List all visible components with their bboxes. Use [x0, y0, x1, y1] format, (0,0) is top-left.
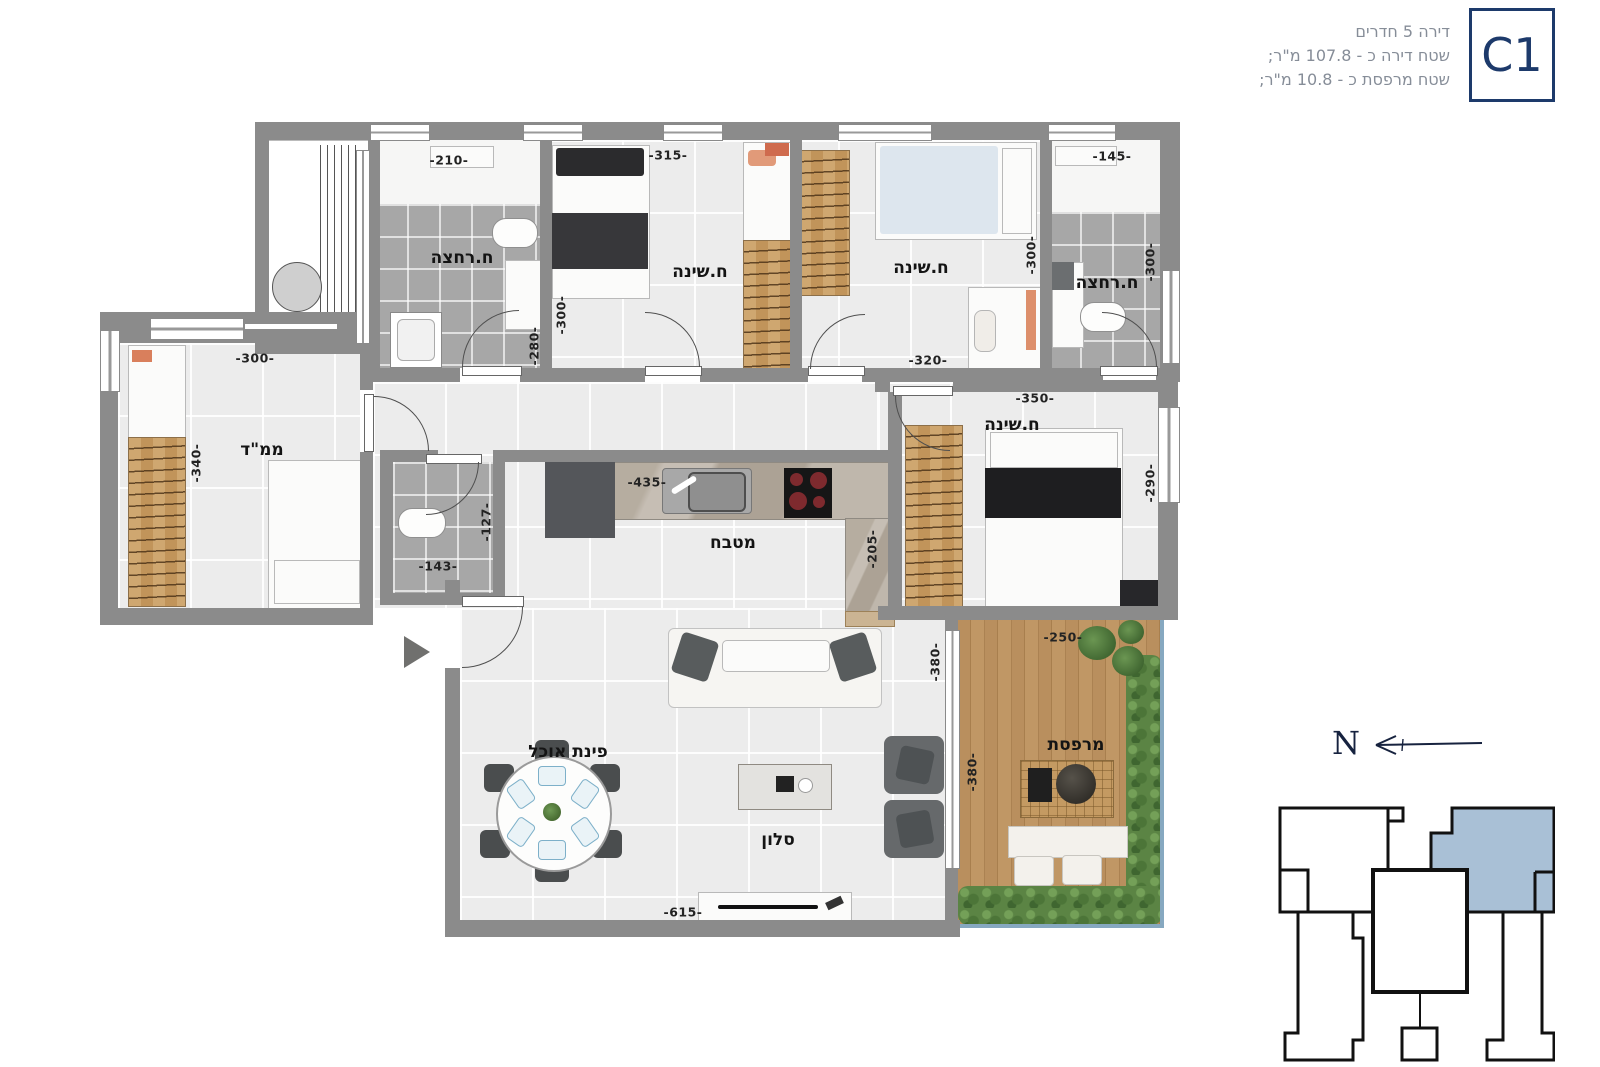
wall [945, 867, 958, 920]
door-leaf [364, 394, 374, 452]
wall [953, 380, 1160, 392]
dim-bath1-width: -210- [430, 153, 469, 168]
dim-kitchen-width: -435- [628, 475, 667, 490]
bed2-pillow [1002, 148, 1032, 234]
apartment-area: שטח דירה כ - 107.8 מ"ר; [1150, 44, 1450, 68]
door-leaf [893, 386, 953, 396]
armchair-pillow [895, 745, 935, 785]
building-key-plan [1245, 778, 1555, 1067]
window [523, 124, 583, 141]
sliding-door [945, 630, 960, 869]
bedroom2-accent [1026, 290, 1036, 350]
planter [1118, 620, 1144, 644]
dim-living-width: -615- [664, 905, 703, 920]
apartment-type: דירה 5 חדרים [1150, 20, 1450, 44]
door-leaf [462, 366, 522, 376]
centerpiece-plant [543, 803, 561, 821]
armchair-pillow [895, 809, 934, 848]
mamad-bed-pillow [274, 560, 360, 604]
wall [445, 580, 460, 598]
wall [875, 380, 890, 392]
outdoor-sofa-seat [1062, 855, 1102, 885]
balcony-rail-right [1160, 618, 1164, 928]
window [150, 318, 244, 340]
bedroom2-wardrobe [798, 150, 850, 296]
unit-badge: C1 [1469, 8, 1555, 102]
bedroom2-chair [974, 310, 996, 352]
window [356, 150, 370, 344]
door-leaf [1100, 366, 1158, 376]
dim-bedroom2-width: -320- [909, 353, 948, 368]
wall [1040, 122, 1052, 380]
north-arrow-icon [1366, 728, 1488, 762]
room-label-living: סלון [761, 830, 795, 850]
burner [810, 472, 827, 489]
bedroom1-cabinet [765, 143, 789, 156]
outdoor-sofa-back [1008, 826, 1128, 858]
outdoor-sofa-seat [1014, 856, 1054, 886]
wall [1158, 368, 1178, 407]
window-sill [245, 324, 337, 329]
dim-balcony-height: -380- [965, 753, 980, 792]
dim-bedroom1-width: -315- [649, 148, 688, 163]
coffee-table-bowl [798, 778, 813, 793]
window [100, 330, 120, 392]
wall [1158, 501, 1178, 620]
window [370, 124, 430, 141]
fridge [545, 462, 615, 538]
balcony-area: שטח מרפסת כ - 10.8 מ"ר; [1150, 68, 1450, 92]
burner [813, 496, 825, 508]
master-blanket [985, 468, 1121, 518]
dim-bedroom3-width: -350- [1016, 391, 1055, 406]
wall [380, 450, 393, 605]
room-label-bedroom1: ח.שינה [672, 262, 727, 282]
room-label-dining: פינת אוכל [528, 742, 608, 762]
window [1048, 124, 1116, 141]
wall [360, 343, 373, 390]
room-label-mamad: ממ"ד [240, 440, 283, 460]
bed1-blanket [552, 213, 648, 269]
dim-wc-width: -143- [419, 559, 458, 574]
balcony-rail-bottom [958, 924, 1164, 928]
burner [790, 473, 803, 486]
wall [700, 368, 808, 382]
dim-bath2-height: -300- [1143, 243, 1158, 282]
north-label: N [1332, 724, 1360, 762]
window [1162, 270, 1180, 364]
window [663, 124, 723, 141]
entry-door-leaf [462, 596, 524, 607]
dim-bath1-height: -280- [527, 327, 542, 366]
bedroom1-wardrobe [743, 240, 793, 378]
room-label-bath1: ח.רחצה [431, 248, 494, 268]
wall [505, 450, 890, 462]
sofa-cushions [722, 640, 830, 672]
dim-bedroom2-height: -300- [1024, 236, 1039, 275]
dim-bath2-width: -145- [1093, 149, 1132, 164]
dim-kitchen-height: -205- [865, 530, 880, 569]
wall [945, 618, 958, 630]
hedge-right [1126, 655, 1162, 923]
bed2-duvet [880, 146, 998, 234]
bed1-pillows [556, 148, 644, 176]
shower-tray [397, 319, 435, 361]
apartment-info: דירה 5 חדרים שטח דירה כ - 107.8 מ"ר; שטח… [1150, 20, 1450, 92]
window [838, 124, 932, 141]
toilet-icon [492, 218, 538, 248]
dim-balcony-width: -250- [1044, 630, 1083, 645]
wall [100, 608, 373, 625]
planter [1112, 646, 1144, 676]
sink-basin [688, 472, 746, 512]
window [1158, 407, 1180, 503]
entrance-arrow [404, 636, 430, 668]
wall [445, 668, 460, 930]
hedge-bottom [958, 886, 1162, 925]
dim-wc-height: -127- [479, 503, 494, 542]
water-heater [272, 262, 322, 312]
door-leaf [645, 366, 702, 376]
dim-mamad-height: -340- [189, 444, 204, 483]
outdoor-table [1056, 764, 1096, 804]
dim-bedroom3-height: -290- [1143, 464, 1158, 503]
wall [790, 122, 802, 380]
floorplan-sheet: דירה 5 חדרים שטח דירה כ - 107.8 מ"ר; שטח… [0, 0, 1600, 1067]
master-wardrobe [905, 425, 963, 617]
room-label-bedroom2: ח.שינה [893, 258, 948, 278]
plate [538, 766, 566, 786]
room-label-balcony: מרפסת [1048, 735, 1105, 755]
plate [538, 840, 566, 860]
wall [493, 450, 505, 605]
wall [540, 122, 552, 380]
dim-living-height: -380- [928, 643, 943, 682]
room-label-bedroom3: ח.שינה [984, 415, 1039, 435]
wall [445, 920, 960, 937]
tv [718, 905, 818, 909]
wall [520, 368, 645, 382]
room-label-bath2: ח.רחצה [1076, 273, 1139, 293]
wall [878, 606, 1178, 620]
wall [888, 392, 902, 618]
mamad-accent [132, 350, 152, 362]
burner [789, 492, 807, 510]
room-label-kitchen: מטבח [710, 533, 756, 553]
coffee-table-decor [776, 776, 794, 792]
master-pillows [990, 432, 1118, 468]
bath2-cabinet [1052, 262, 1074, 290]
wall [368, 368, 460, 382]
dim-bedroom1-height: -300- [554, 296, 569, 335]
dim-mamad-width: -300- [236, 351, 275, 366]
outdoor-tray [1028, 768, 1052, 802]
planter [1078, 626, 1116, 660]
wall [360, 452, 373, 625]
mamad-wardrobe [128, 437, 186, 607]
